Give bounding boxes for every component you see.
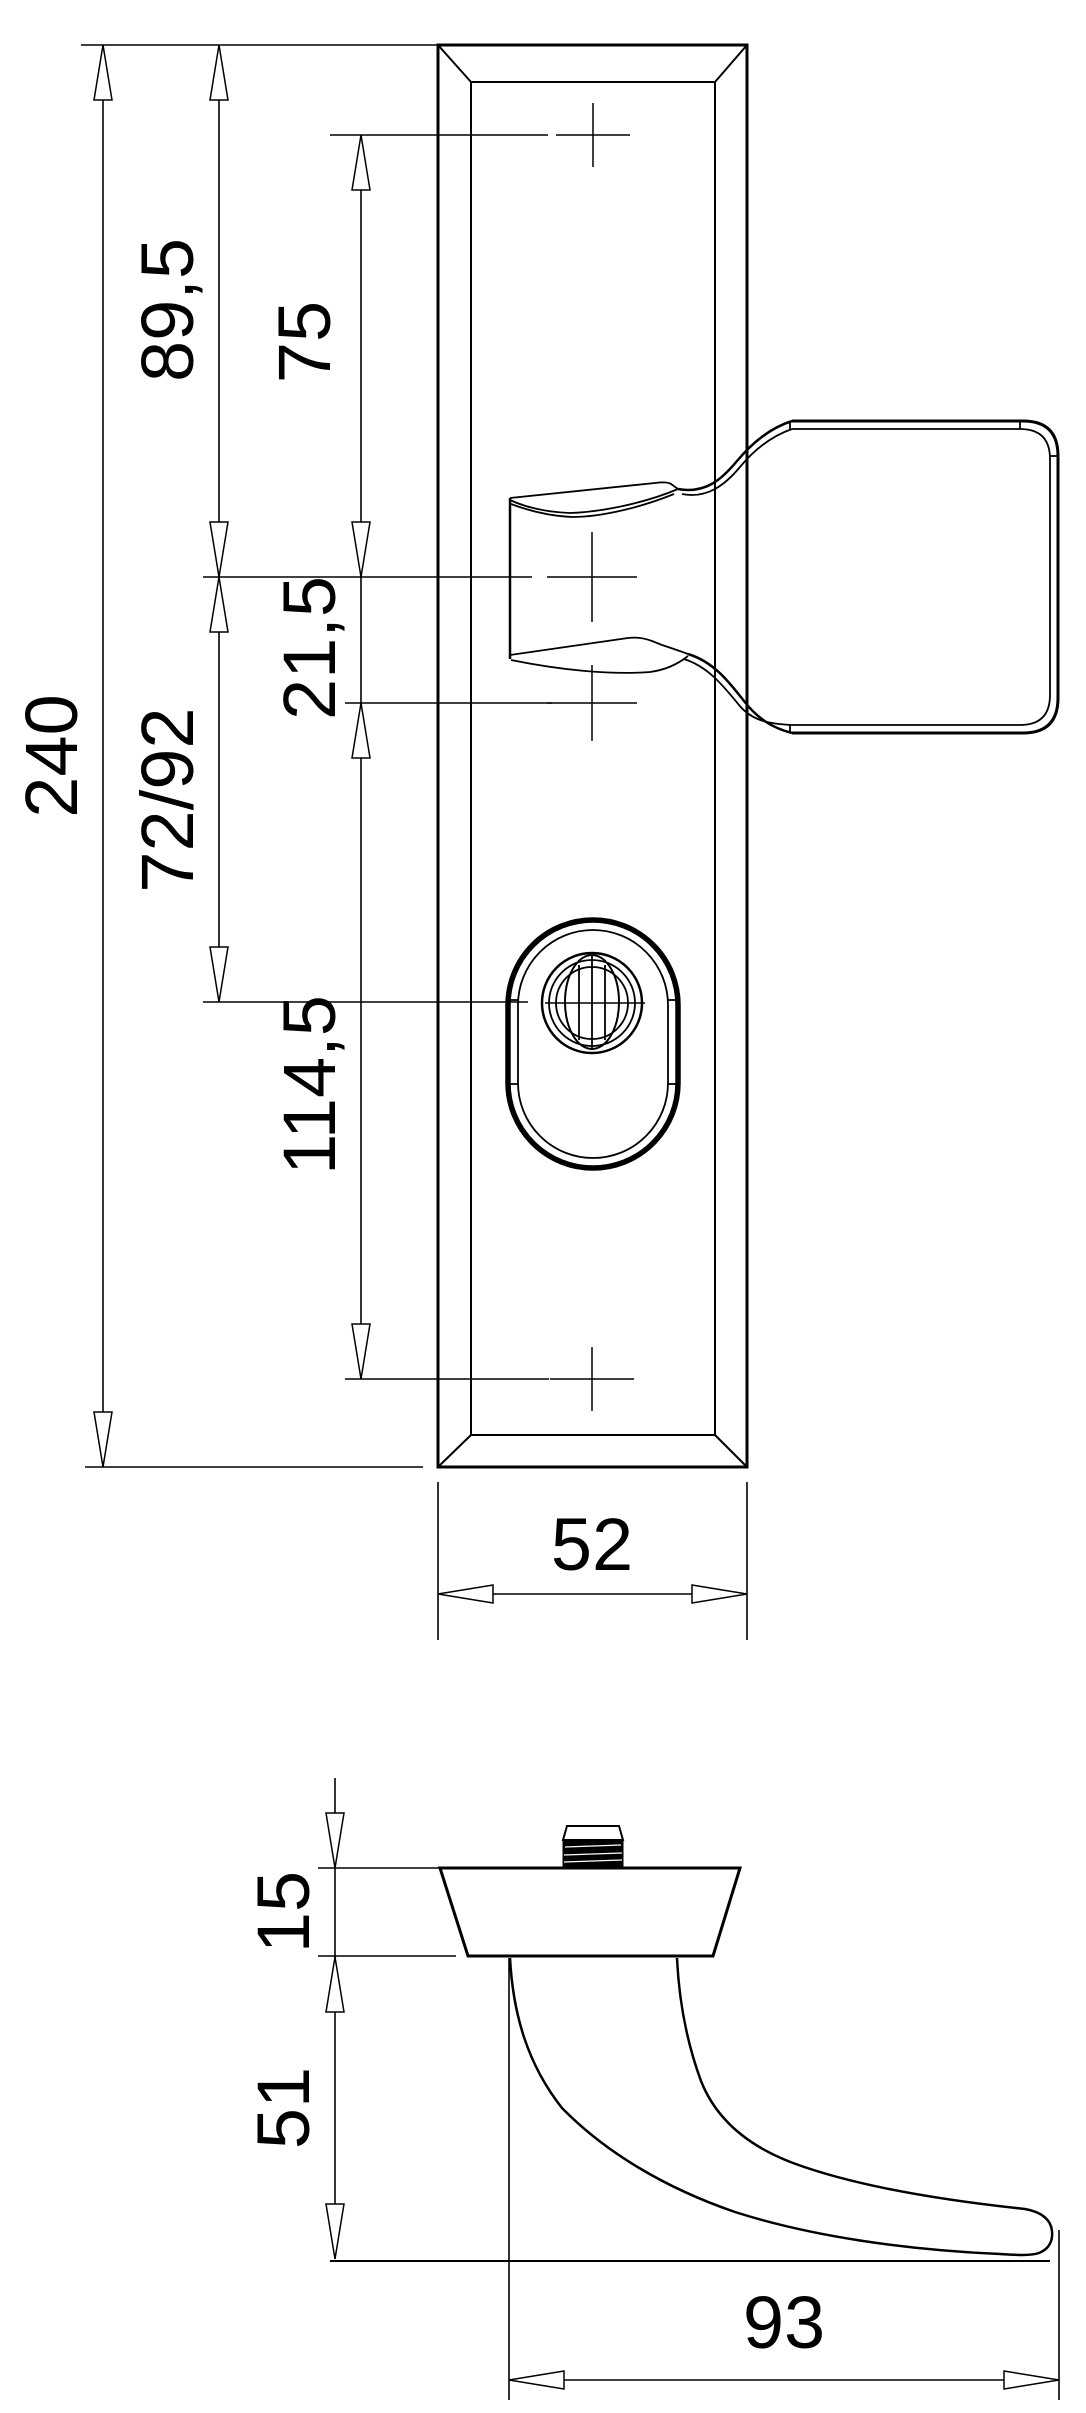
arrow-left <box>509 2371 564 2389</box>
dim-label-52: 52 <box>551 1503 633 1586</box>
handle-side <box>330 1958 1052 2261</box>
arrow-up <box>210 577 228 632</box>
hole-crosses <box>547 103 637 1411</box>
bevel-corner-bottom-left <box>438 1435 471 1467</box>
grip-inner-edge <box>792 429 1050 725</box>
rose-trapezoid-outline <box>440 1868 740 1956</box>
dim-label-93: 93 <box>743 2281 825 2364</box>
neck-lower-sweep-outer <box>688 654 792 733</box>
dim-label-72-92: 72/92 <box>126 707 209 892</box>
dim-label-114-5: 114,5 <box>268 995 351 1175</box>
spindle-cap <box>563 1826 623 1840</box>
neck-lower-lens-bottom <box>511 656 688 673</box>
arrow-down <box>210 522 228 577</box>
grip-outline <box>792 421 1058 733</box>
dim-label-75: 75 <box>263 301 346 383</box>
dim-label-21-5: 21,5 <box>268 576 351 720</box>
side-view: 15 51 93 <box>242 1778 1059 2400</box>
arrow-down <box>352 1324 370 1379</box>
dim-label-240: 240 <box>10 694 93 817</box>
backplate-bevel-inner-outline <box>471 82 715 1435</box>
security-rosette <box>508 920 678 1168</box>
arrow-up <box>326 1957 344 2012</box>
drawing-page: 240 89,5 75 21,5 72/92 114,5 52 <box>0 0 1086 2413</box>
bevel-corner-top-left <box>438 45 471 82</box>
rose-side <box>440 1868 740 1956</box>
handle-axis-cross <box>547 532 637 622</box>
arrowheads <box>326 1813 1059 2389</box>
handle-side-outline <box>510 1958 1052 2255</box>
front-view: 240 89,5 75 21,5 72/92 114,5 52 <box>10 45 1058 1640</box>
arrow-down <box>352 522 370 577</box>
arrow-down <box>326 1813 344 1868</box>
side-dimensions: 15 51 93 <box>242 1778 1059 2400</box>
arrow-down <box>94 1412 112 1467</box>
dim-label-89-5: 89,5 <box>126 238 209 382</box>
extension-lines <box>318 1868 1059 2400</box>
arrow-up <box>210 45 228 100</box>
technical-drawing-svg: 240 89,5 75 21,5 72/92 114,5 52 <box>0 0 1086 2413</box>
neck-upper-sweep-outer <box>678 421 792 490</box>
arrow-right <box>692 1585 747 1603</box>
neck-upper-lens-bottom-inner <box>511 494 674 517</box>
arrow-up <box>352 703 370 758</box>
backplate <box>438 45 747 1467</box>
bottom-fixing-hole-cross <box>550 1347 634 1411</box>
bevel-corner-top-right <box>715 45 747 82</box>
arrow-right <box>1004 2371 1059 2389</box>
neck-lower-lens-top <box>510 638 688 655</box>
front-dimensions: 240 89,5 75 21,5 72/92 114,5 52 <box>10 45 747 1640</box>
rosette-outer-oval <box>508 920 678 1168</box>
neck-upper-lens-top <box>510 482 678 498</box>
top-fixing-hole-cross <box>556 103 630 167</box>
dim-label-51: 51 <box>242 2067 325 2149</box>
spindle-stub <box>563 1826 623 1868</box>
rosette-inner-oval <box>518 930 668 1158</box>
dim-label-15: 15 <box>242 1871 325 1953</box>
arrow-up <box>94 45 112 100</box>
lower-hole-cross <box>547 665 637 741</box>
arrow-up <box>352 135 370 190</box>
bevel-corner-bottom-right <box>715 1435 747 1467</box>
arrow-down <box>210 947 228 1002</box>
arrow-down <box>326 2204 344 2259</box>
arrow-left <box>438 1585 493 1603</box>
backplate-outer-outline <box>438 45 747 1467</box>
